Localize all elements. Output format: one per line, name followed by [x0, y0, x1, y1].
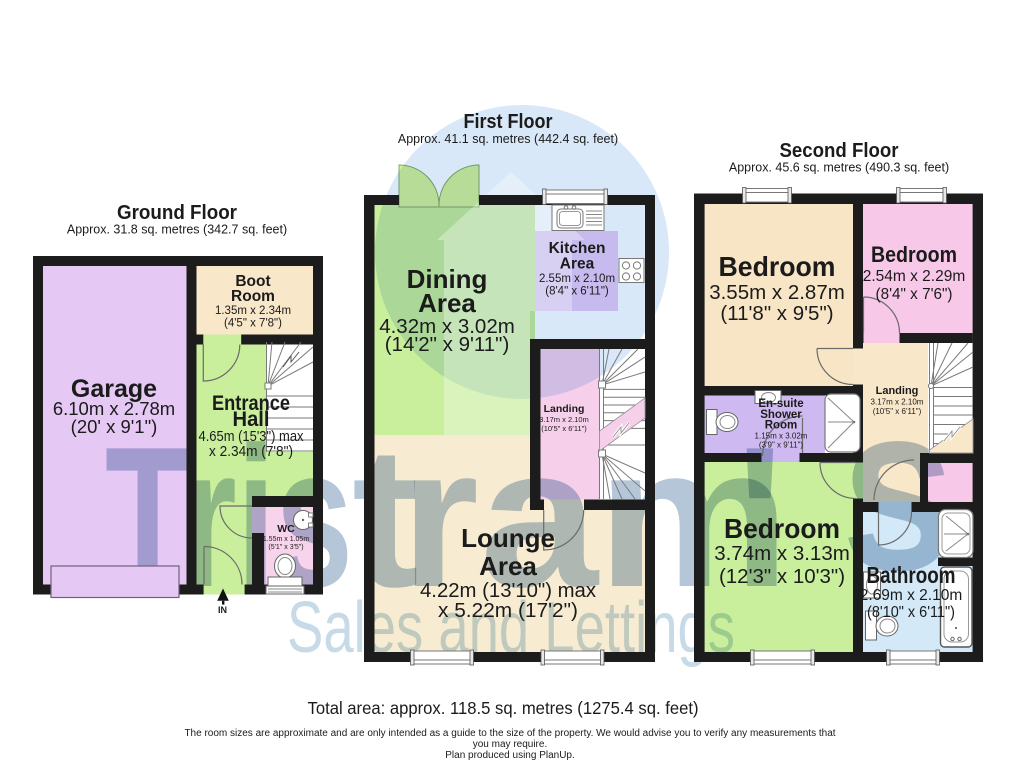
svg-text:The room sizes are approximate: The room sizes are approximate and are o… — [184, 728, 835, 739]
svg-text:(11'8" x 9'5"): (11'8" x 9'5") — [720, 302, 833, 325]
svg-text:Kitchen: Kitchen — [549, 240, 606, 257]
svg-text:Total area: approx. 118.5 sq.: Total area: approx. 118.5 sq. metres (12… — [308, 698, 699, 718]
svg-text:(5'1" x 3'5"): (5'1" x 3'5") — [268, 544, 303, 551]
svg-text:1.15m x 3.02m: 1.15m x 3.02m — [755, 432, 808, 441]
svg-text:Approx. 45.6 sq. metres (490.3: Approx. 45.6 sq. metres (490.3 sq. feet) — [729, 161, 949, 175]
svg-text:Landing: Landing — [876, 385, 919, 397]
svg-text:x 2.34m (7'8"): x 2.34m (7'8") — [209, 444, 293, 460]
svg-text:Plan produced using PlanUp.: Plan produced using PlanUp. — [445, 750, 575, 761]
svg-text:Landing: Landing — [544, 403, 585, 415]
svg-text:Bathroom: Bathroom — [867, 562, 956, 588]
svg-text:Hall: Hall — [233, 407, 270, 431]
svg-text:Approx. 41.1 sq. metres (442.4: Approx. 41.1 sq. metres (442.4 sq. feet) — [398, 132, 618, 146]
svg-text:Lounge: Lounge — [461, 523, 555, 553]
svg-text:(10'5" x 6'11"): (10'5" x 6'11") — [541, 424, 587, 433]
svg-text:3.74m x 3.13m: 3.74m x 3.13m — [714, 542, 850, 565]
svg-text:4.65m (15'3") max: 4.65m (15'3") max — [199, 429, 305, 445]
svg-text:3.17m x 2.10m: 3.17m x 2.10m — [871, 398, 924, 407]
svg-text:3.55m x 2.87m: 3.55m x 2.87m — [709, 281, 845, 304]
svg-text:(20' x 9'1"): (20' x 9'1") — [71, 416, 158, 437]
svg-text:2.54m x 2.29m: 2.54m x 2.29m — [863, 268, 966, 285]
svg-text:(14'2" x 9'11"): (14'2" x 9'11") — [385, 333, 510, 356]
svg-text:WC: WC — [277, 523, 295, 535]
svg-text:Bedroom: Bedroom — [719, 251, 836, 282]
svg-text:(10'5" x 6'11"): (10'5" x 6'11") — [873, 407, 922, 416]
svg-text:(12'3" x 10'3"): (12'3" x 10'3") — [719, 565, 845, 588]
svg-text:(8'10" x 6'11"): (8'10" x 6'11") — [867, 604, 955, 621]
svg-text:Room: Room — [765, 420, 798, 432]
svg-text:Area: Area — [560, 256, 595, 273]
svg-text:Room: Room — [231, 288, 275, 305]
svg-text:Second Floor: Second Floor — [780, 140, 899, 162]
svg-text:(3'9" x 9'11"): (3'9" x 9'11") — [759, 441, 803, 450]
svg-text:Bedroom: Bedroom — [724, 513, 840, 544]
svg-text:Bedroom: Bedroom — [871, 242, 957, 267]
svg-text:Ground Floor: Ground Floor — [117, 202, 237, 224]
svg-text:3.17m x 2.10m: 3.17m x 2.10m — [539, 415, 589, 424]
svg-text:IN: IN — [218, 605, 227, 615]
svg-text:(8'4" x 6'11"): (8'4" x 6'11") — [545, 286, 609, 298]
svg-text:Area: Area — [418, 288, 476, 318]
svg-text:x 5.22m (17'2"): x 5.22m (17'2") — [438, 599, 578, 622]
svg-text:1.55m x 1.05m: 1.55m x 1.05m — [263, 536, 309, 543]
svg-text:First Floor: First Floor — [464, 111, 553, 133]
svg-text:2.69m x 2.10m: 2.69m x 2.10m — [860, 587, 963, 604]
svg-text:2.55m x 2.10m: 2.55m x 2.10m — [539, 273, 615, 285]
svg-text:Approx. 31.8 sq. metres (342.7: Approx. 31.8 sq. metres (342.7 sq. feet) — [67, 223, 287, 237]
svg-text:(4'5" x 7'8"): (4'5" x 7'8") — [224, 318, 282, 330]
svg-text:1.35m x 2.34m: 1.35m x 2.34m — [215, 305, 291, 317]
svg-text:(8'4" x 7'6"): (8'4" x 7'6") — [876, 286, 953, 303]
svg-text:you may require.: you may require. — [473, 739, 547, 750]
svg-text:Area: Area — [479, 551, 537, 581]
